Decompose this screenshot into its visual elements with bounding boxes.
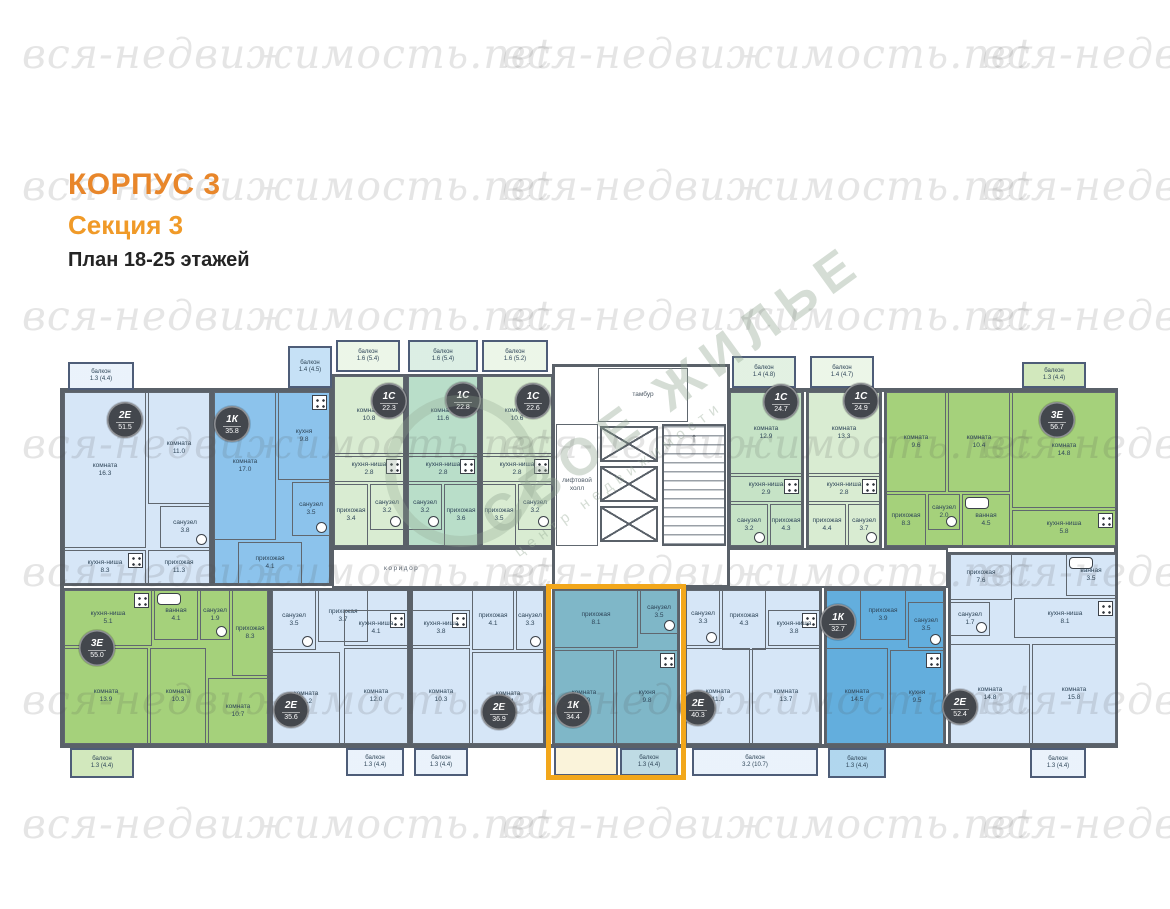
room-кухня-ниша: кухня-ниша2.8 [334,456,404,482]
balcony: балкон1.3 (4.4) [414,748,468,776]
staircase: ↑ [662,424,726,546]
room-label: кухня-ниша8.1 [1048,610,1083,626]
apartment-badge: 3Е55.0 [79,630,115,666]
room-ванная: ванная4.1 [154,590,198,640]
room-label: балкон1.3 (4.4) [364,755,386,770]
corridor: коридор [332,548,556,588]
room-label: ванная3.5 [1080,567,1101,583]
room-label: балкон1.3 (4.4) [638,755,660,770]
stove-icon [386,459,401,474]
room-прихожая: прихожая7.6 [950,554,1012,600]
room-ванная: ванная3.5 [1066,554,1116,596]
room-label: санузел3.3 [518,612,542,628]
room-label: комната13.3 [832,425,857,441]
room-label: прихожая4.4 [813,517,842,533]
room-label: кухня-ниша3.8 [777,620,812,636]
watermark-text: вся-недвижимость.net [22,292,553,340]
room-прихожая: прихожая3.9 [860,590,906,640]
sink-icon [706,632,717,643]
apartment-badge: 2Е40.3 [680,690,716,726]
room-санузел: санузел3.8 [160,506,210,548]
balcony: балкон1.3 (4.4) [828,748,886,778]
balcony [554,746,618,776]
room-кухня: кухня9.5 [890,650,944,744]
room-санузел: санузел3.3 [686,590,720,646]
room-кухня-ниша: кухня-ниша2.9 [730,476,802,502]
room-label: лифтовой холл [557,477,597,494]
room-label: балкон1.3 (4.4) [430,755,452,770]
watermark-text: вся-недвижимость.net [982,162,1170,210]
room-label: комната10.4 [967,434,992,450]
apartment-badge: 1К32.7 [820,604,856,640]
elevator-shaft [600,506,658,542]
room-label: кухня-ниша5.1 [91,610,126,626]
elevator-shaft [600,426,658,462]
room-кухня-ниша: кухня-ниша8.3 [64,550,146,584]
balcony: балкон1.3 (4.4) [1022,362,1086,388]
apartment-badge: 1С22.8 [445,382,481,418]
watermark-text: вся-недвижимость.net [502,292,1033,340]
room-санузел: санузел3.3 [516,590,544,650]
room-прихожая: прихожая3.6 [444,484,478,546]
apartment-badge: 3Е56.7 [1039,402,1075,438]
room-санузел: санузел3.5 [908,602,944,648]
apartment-badge: 2Е35.6 [273,692,309,728]
room-label: санузел3.2 [375,499,399,515]
room-label: комната11.0 [167,440,192,456]
room-label: санузел3.2 [523,499,547,515]
room-кухня-ниша: кухня-ниша2.8 [808,476,880,502]
room-label: комната12.9 [754,425,779,441]
room-label: кухня-ниша8.3 [88,559,123,575]
room-комната: комната10.3 [412,648,470,744]
watermark-text: вся-недвижимость.net [22,30,553,78]
room-комната: комната15.8 [1032,644,1116,744]
room-label: кухня9.8 [639,689,656,705]
room-label: балкон1.3 (4.4) [1047,756,1069,771]
apartment-badge: 1С22.3 [371,383,407,419]
corridor-label: коридор [384,565,419,572]
room-санузел: санузел3.5 [272,590,316,650]
room-label: прихожая3.5 [485,507,514,523]
stove-icon [312,395,327,410]
watermark-text: вся-недвижимость.net [502,30,1033,78]
stove-icon [1098,513,1113,528]
balcony: балкон1.3 (4.4) [68,362,134,390]
room-label: комната14.5 [845,688,870,704]
room-label: прихожая3.6 [447,507,476,523]
balcony: балкон1.4 (4.5) [288,346,332,388]
room-label: кухня9.5 [909,689,926,705]
room-прихожая: прихожая8.3 [232,590,268,676]
watermark-text: вся-недвижимость.net [982,800,1170,848]
room-прихожая: прихожая4.3 [770,504,802,546]
floorplan-image: КОРПУС 3 Секция 3 План 18-25 этажей СВОЕ… [0,0,1170,909]
room-кухня: кухня9.8 [278,392,330,480]
room-label: прихожая11.3 [165,559,194,575]
room-кухня-ниша: кухня-ниша2.8 [482,456,552,482]
sink-icon [390,516,401,527]
room-label: балкон1.4 (4.8) [753,365,775,380]
stove-icon [128,553,143,568]
stove-icon [134,593,149,608]
watermark-text: вся-недвижимость.net [982,30,1170,78]
room-label: санузел3.5 [282,612,306,628]
room-label: ванная4.1 [165,607,186,623]
room-комната: комната9.6 [886,392,946,492]
balcony: балкон1.3 (4.4) [70,748,134,778]
room-комната: комната12.0 [344,648,408,744]
bathtub-icon [965,497,989,509]
watermark-text: вся-недвижимость.net [982,292,1170,340]
vestibule: тамбур [598,368,688,422]
room-label: комната14.8 [1052,442,1077,458]
stove-icon [460,459,475,474]
section-title: Секция 3 [68,210,250,241]
room-кухня: кухня9.8 [616,650,678,744]
room-кухня-ниша: кухня-ниша5.8 [1012,510,1116,546]
room-label: санузел2.0 [932,504,956,520]
room-санузел: санузел3.2 [730,504,768,546]
room-комната: комната10.7 [208,678,268,744]
room-label: ванная4.5 [975,512,996,528]
balcony: балкон1.3 (4.4) [1030,748,1086,778]
room-label: комната13.9 [94,688,119,704]
room-label: кухня-ниша2.8 [352,461,387,477]
room-label: кухня9.8 [296,428,313,444]
room-label: кухня-ниша2.8 [827,481,862,497]
sink-icon [866,532,877,543]
stove-icon [660,653,675,668]
apartment-badge: 1С24.9 [843,383,879,419]
stove-icon [1098,601,1113,616]
room-комната: комната10.3 [150,648,206,744]
watermark-text: вся-недвижимость.net [502,162,1033,210]
room-label: балкон3.2 (10.7) [742,755,768,770]
room-label: санузел3.7 [852,517,876,533]
room-label: санузел1.7 [958,611,982,627]
room-кухня-ниша: кухня-ниша3.8 [412,610,470,646]
room-label: санузел1.9 [203,607,227,623]
room-label: тамбур [632,391,653,399]
room-санузел: санузел3.7 [848,504,880,546]
room-комната: комната13.7 [752,648,820,744]
elevator-shaft [600,466,658,502]
room-label: прихожая4.3 [730,612,759,628]
room-label: санузел3.2 [737,517,761,533]
room-label: кухня-ниша3.8 [424,620,459,636]
room-прихожая: прихожая3.4 [334,484,368,546]
room-прихожая: прихожая11.3 [148,550,210,584]
room-label: кухня-ниша2.8 [500,461,535,477]
room-label: балкон1.6 (5.2) [504,349,526,364]
room-прихожая: прихожая4.1 [238,542,302,584]
watermark-text: вся-недвижимость.net [22,800,553,848]
room-прихожая: прихожая3.5 [482,484,516,546]
watermark-text: вся-недвижимость.net [502,800,1033,848]
room-санузел: санузел3.2 [370,484,404,530]
room-прихожая: прихожая4.1 [472,590,514,650]
room-санузел: санузел3.2 [408,484,442,530]
room-ванная: ванная4.5 [962,494,1010,546]
room-прихожая: прихожая8.1 [554,590,638,648]
room-label: комната12.0 [364,688,389,704]
room-label: санузел3.5 [647,604,671,620]
room-label: прихожая3.4 [337,507,366,523]
room-label: балкон1.4 (4.7) [831,365,853,380]
stairs-up-arrow-icon: ↑ [691,430,698,445]
apartment-badge: 1К34.4 [555,692,591,728]
balcony: балкон1.6 (5.4) [336,340,400,372]
balcony: балкон1.6 (5.2) [482,340,548,372]
apartment-badge: 2Е36.9 [481,694,517,730]
room-санузел: санузел1.9 [200,590,230,640]
apartment-badge: 2Е52.4 [942,689,978,725]
room-label: прихожая8.3 [892,512,921,528]
stove-icon [784,479,799,494]
room-label: прихожая3.9 [869,607,898,623]
room-кухня-ниша: кухня-ниша3.8 [768,610,820,646]
apartment-badge: 1С24.7 [763,384,799,420]
stove-icon [534,459,549,474]
room-label: балкон1.3 (4.4) [1043,368,1065,383]
balcony: балкон1.3 (4.4) [620,748,678,776]
balcony: балкон1.6 (5.4) [408,340,478,372]
room-label: кухня-ниша5.8 [1047,520,1082,536]
room-кухня-ниша: кухня-ниша4.1 [344,610,408,646]
sink-icon [316,522,327,533]
room-label: прихожая4.3 [772,517,801,533]
room-label: прихожая4.1 [256,555,285,571]
apartment-badge: 2Е51.5 [107,402,143,438]
balcony: балкон1.4 (4.8) [732,356,796,388]
room-label: комната10.3 [166,688,191,704]
sink-icon [302,636,313,647]
room-label: санузел3.3 [691,610,715,626]
room-прихожая: прихожая4.3 [722,590,766,650]
room-label: кухня-ниша4.1 [359,620,394,636]
room-label: кухня-ниша2.9 [749,481,784,497]
room-label: прихожая8.1 [582,611,611,627]
elevator-hall: лифтовой холл [556,424,598,546]
sink-icon [428,516,439,527]
sink-icon [664,620,675,631]
room-label: санузел3.8 [173,519,197,535]
sink-icon [216,626,227,637]
title-block: КОРПУС 3 Секция 3 План 18-25 этажей [68,168,250,272]
room-label: прихожая4.1 [479,612,508,628]
room-label: балкон1.6 (5.4) [432,349,454,364]
room-санузел: санузел3.2 [518,484,552,530]
room-label: комната13.7 [774,688,799,704]
room-прихожая: прихожая4.4 [808,504,846,546]
room-label: кухня-ниша2.8 [426,461,461,477]
room-кухня-ниша: кухня-ниша8.1 [1014,598,1116,638]
room-label: балкон1.4 (4.5) [299,360,321,375]
room-label: прихожая8.3 [236,625,265,641]
bathtub-icon [157,593,181,605]
room-label: комната15.8 [1062,686,1087,702]
room-label: балкон1.6 (5.4) [357,349,379,364]
sink-icon [530,636,541,647]
room-label: комната16.3 [93,462,118,478]
room-label: балкон1.3 (4.4) [846,756,868,771]
room-комната: комната10.4 [948,392,1010,492]
room-label: комната17.0 [233,458,258,474]
room-label: санузел3.2 [413,499,437,515]
room-санузел: санузел2.0 [928,494,960,530]
room-label: комната10.7 [226,703,251,719]
stove-icon [862,479,877,494]
room-label: комната9.6 [904,434,929,450]
building-title: КОРПУС 3 [68,168,250,202]
room-санузел: санузел1.7 [950,602,990,636]
balcony: балкон1.3 (4.4) [346,748,404,776]
room-label: санузел3.5 [299,501,323,517]
apartment-badge: 1К35.8 [214,406,250,442]
sink-icon [196,534,207,545]
floors-subtitle: План 18-25 этажей [68,249,250,272]
room-кухня-ниша: кухня-ниша2.8 [408,456,478,482]
room-label: комната10.3 [429,688,454,704]
stove-icon [926,653,941,668]
sink-icon [930,634,941,645]
room-комната: комната11.0 [148,392,210,504]
room-комната: комната14.5 [826,648,888,744]
balcony: балкон3.2 (10.7) [692,748,818,776]
room-санузел: санузел3.5 [292,482,330,536]
apartment-badge: 1С22.6 [515,383,551,419]
room-прихожая: прихожая8.3 [886,494,926,546]
room-label: балкон1.3 (4.4) [91,756,113,771]
sink-icon [538,516,549,527]
room-label: балкон1.3 (4.4) [90,369,112,384]
room-санузел: санузел3.5 [640,590,678,634]
room-label: комната14.8 [978,686,1003,702]
room-label: прихожая7.6 [967,569,996,585]
sink-icon [754,532,765,543]
room-label: санузел3.5 [914,617,938,633]
